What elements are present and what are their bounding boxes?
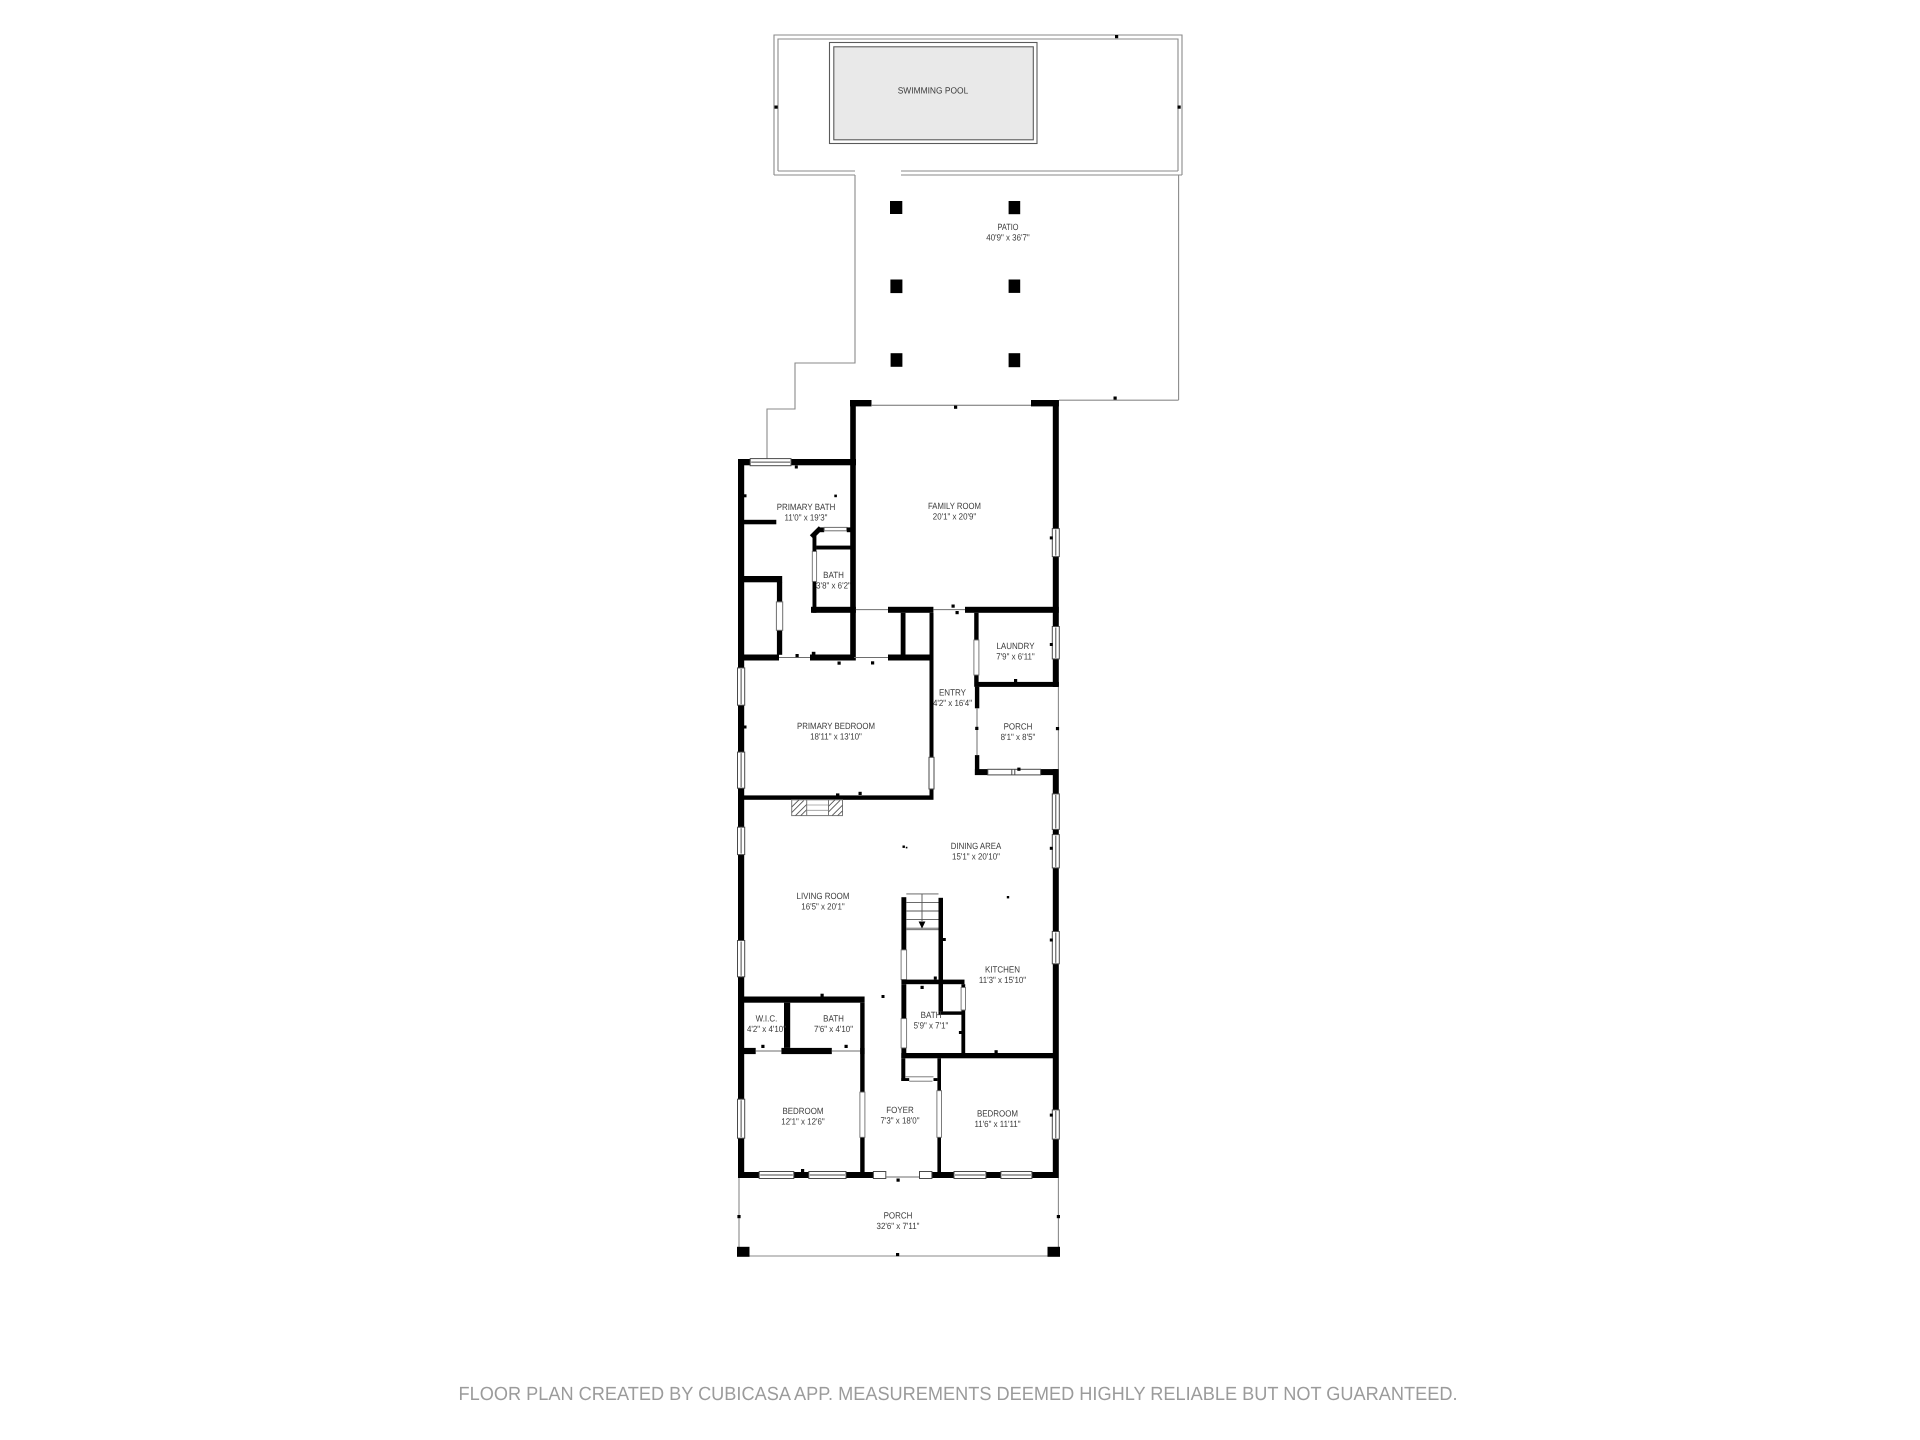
svg-text:DINING AREA: DINING AREA bbox=[951, 841, 1002, 851]
svg-text:16'5" x 20'1": 16'5" x 20'1" bbox=[801, 902, 844, 912]
svg-text:3'8" x 6'2": 3'8" x 6'2" bbox=[816, 581, 851, 591]
svg-text:PORCH: PORCH bbox=[1004, 722, 1033, 732]
svg-text:FLOOR PLAN CREATED BY CUBICASA: FLOOR PLAN CREATED BY CUBICASA APP. MEAS… bbox=[459, 1384, 1458, 1405]
svg-text:PATIO: PATIO bbox=[998, 222, 1019, 232]
svg-text:32'6" x 7'11": 32'6" x 7'11" bbox=[877, 1221, 920, 1231]
svg-text:4'2" x 16'4": 4'2" x 16'4" bbox=[933, 698, 972, 708]
svg-text:PRIMARY BATH: PRIMARY BATH bbox=[777, 502, 836, 512]
svg-text:4'2" x 4'10": 4'2" x 4'10" bbox=[747, 1024, 786, 1034]
svg-text:BEDROOM: BEDROOM bbox=[977, 1109, 1018, 1119]
svg-text:LAUNDRY: LAUNDRY bbox=[996, 641, 1034, 651]
svg-text:FAMILY ROOM: FAMILY ROOM bbox=[928, 501, 981, 511]
svg-text:12'1" x 12'6": 12'1" x 12'6" bbox=[781, 1117, 824, 1127]
svg-text:BEDROOM: BEDROOM bbox=[782, 1106, 823, 1116]
svg-text:KITCHEN: KITCHEN bbox=[985, 965, 1020, 975]
svg-text:8'1" x 8'5": 8'1" x 8'5" bbox=[1001, 732, 1036, 742]
svg-text:18'11" x 13'10": 18'11" x 13'10" bbox=[810, 732, 862, 742]
svg-text:SWIMMING POOL: SWIMMING POOL bbox=[898, 86, 969, 96]
svg-text:BATH: BATH bbox=[823, 1014, 844, 1024]
svg-text:11'0" x 19'3": 11'0" x 19'3" bbox=[785, 513, 828, 523]
svg-text:15'1" x 20'10": 15'1" x 20'10" bbox=[952, 852, 1000, 862]
svg-text:7'6" x 4'10": 7'6" x 4'10" bbox=[814, 1024, 853, 1034]
svg-text:20'1" x 20'9": 20'1" x 20'9" bbox=[933, 512, 976, 522]
svg-text:W.I.C.: W.I.C. bbox=[756, 1014, 778, 1024]
svg-text:ENTRY: ENTRY bbox=[939, 688, 966, 698]
svg-text:7'9" x 6'11": 7'9" x 6'11" bbox=[996, 652, 1035, 662]
svg-text:11'6" x 11'11": 11'6" x 11'11" bbox=[974, 1119, 1020, 1129]
svg-text:7'3" x 18'0": 7'3" x 18'0" bbox=[880, 1116, 919, 1126]
svg-text:PORCH: PORCH bbox=[884, 1211, 913, 1221]
svg-text:FOYER: FOYER bbox=[886, 1105, 914, 1115]
svg-text:11'3" x 15'10": 11'3" x 15'10" bbox=[979, 975, 1026, 985]
svg-text:BATH: BATH bbox=[921, 1010, 942, 1020]
svg-text:5'9" x 7'1": 5'9" x 7'1" bbox=[914, 1021, 949, 1031]
svg-text:PRIMARY BEDROOM: PRIMARY BEDROOM bbox=[797, 721, 875, 731]
svg-text:LIVING ROOM: LIVING ROOM bbox=[797, 891, 850, 901]
svg-text:40'9" x 36'7": 40'9" x 36'7" bbox=[986, 233, 1029, 243]
svg-text:BATH: BATH bbox=[823, 570, 844, 580]
